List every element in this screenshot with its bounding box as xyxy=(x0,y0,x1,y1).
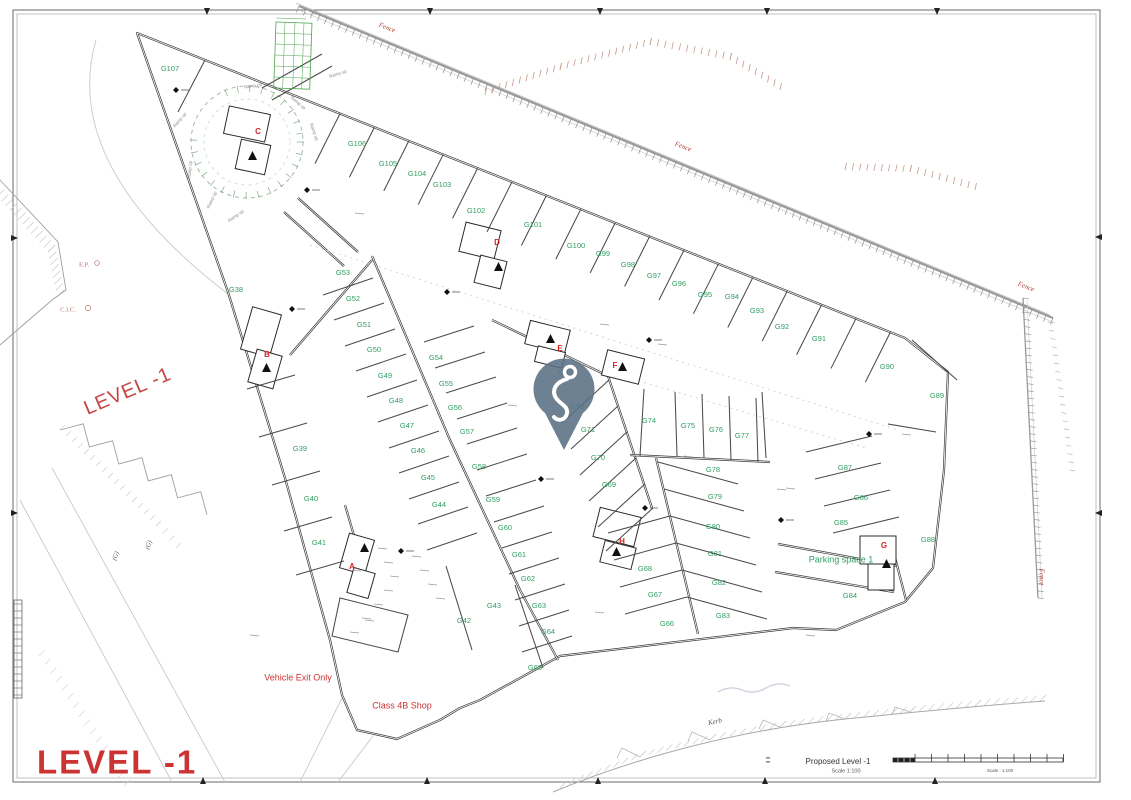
stair-core-label: H xyxy=(619,537,625,546)
parking-space-label: G58 xyxy=(472,462,486,471)
stall-divider xyxy=(675,392,677,456)
parking-space-label: G99 xyxy=(596,249,610,258)
stair-core-room xyxy=(347,567,375,598)
micro-annotation xyxy=(365,620,374,621)
survey-marker xyxy=(646,337,652,343)
scale-bar: Scale : 1:100 xyxy=(893,754,1064,773)
parking-space-label: G50 xyxy=(367,345,381,354)
micro-annotation xyxy=(508,405,517,406)
survey-marker xyxy=(642,505,648,511)
parking-space-label: G82 xyxy=(712,578,726,587)
parking-space-label: G77 xyxy=(735,431,749,440)
parking-space-label: G84 xyxy=(843,591,857,600)
parking-space-label: G39 xyxy=(293,444,307,453)
parking-space-label: G66 xyxy=(660,619,674,628)
stair-core-label: F xyxy=(613,361,618,370)
micro-annotation xyxy=(374,604,383,605)
parking-space-label: G81 xyxy=(708,549,722,558)
stall-divider xyxy=(323,278,373,295)
stall-divider xyxy=(797,305,822,355)
stall-divider xyxy=(467,428,517,444)
stall-divider xyxy=(762,291,787,341)
parking-space-label: G76 xyxy=(709,425,723,434)
parking-space-label: G67 xyxy=(648,590,662,599)
stair-core-label: B xyxy=(264,350,270,359)
fence-label: Fence xyxy=(377,20,397,34)
parking-space-label: G45 xyxy=(421,473,435,482)
parking-space-label: G87 xyxy=(838,463,852,472)
gray-annotation: Kerb xyxy=(706,716,723,727)
parking-space-label: G57 xyxy=(460,427,474,436)
fence-label: Fence xyxy=(1016,279,1036,293)
stair-core-label: A xyxy=(349,562,355,571)
stall-divider xyxy=(912,340,957,380)
parking-space-label: G94 xyxy=(725,292,739,301)
parking-space-label: G54 xyxy=(429,353,443,362)
stall-divider xyxy=(729,396,731,460)
parking-space-label: G49 xyxy=(378,371,392,380)
stall-divider xyxy=(418,507,468,524)
parking-space-label: G61 xyxy=(512,550,526,559)
parking-space-label: G56 xyxy=(448,403,462,412)
stall-divider xyxy=(659,250,684,300)
stall-divider xyxy=(272,471,320,485)
parking-space-label: Parking space 1 xyxy=(809,554,874,564)
parking-space-label: G69 xyxy=(602,480,616,489)
ramp-label: Ramp up xyxy=(244,82,263,90)
stall-divider xyxy=(728,277,753,327)
gray-annotation: (G) xyxy=(144,540,153,551)
parking-space-label: G48 xyxy=(389,396,403,405)
stair-core-label: G xyxy=(881,541,887,550)
parking-space-label: G52 xyxy=(346,294,360,303)
stall-divider xyxy=(367,380,417,397)
parking-space-label: G106 xyxy=(348,139,366,148)
ramp-label: Ramp up xyxy=(328,68,347,79)
stall-divider xyxy=(399,456,449,473)
parking-space-label: G64 xyxy=(541,627,555,636)
stall-divider xyxy=(446,566,472,650)
survey-marker xyxy=(289,306,295,312)
stall-divider xyxy=(658,462,738,484)
survey-marker xyxy=(444,289,450,295)
stall-divider xyxy=(446,377,496,393)
micro-annotation xyxy=(428,584,437,585)
micro-annotation xyxy=(362,618,371,619)
parking-space-label: G70 xyxy=(591,453,605,462)
parking-space-label: G92 xyxy=(775,322,789,331)
survey-marker xyxy=(538,476,544,482)
parking-space-label: G59 xyxy=(486,495,500,504)
stall-divider xyxy=(590,223,615,273)
stall-divider xyxy=(349,127,374,177)
parking-space-label: G91 xyxy=(812,334,826,343)
parking-space-label: G85 xyxy=(834,518,848,527)
fence-label: Fence xyxy=(673,139,693,153)
red-annotation: Vehicle Exit Only xyxy=(264,672,332,682)
parking-space-label: G93 xyxy=(750,306,764,315)
parking-space-label: G60 xyxy=(498,523,512,532)
parking-space-label: G62 xyxy=(521,574,535,583)
parking-space-label: G51 xyxy=(357,320,371,329)
parking-space-label: G40 xyxy=(304,494,318,503)
sheet-scale: Scale 1:100 xyxy=(831,768,860,774)
parking-space-label: G75 xyxy=(681,421,695,430)
micro-annotation xyxy=(384,562,393,563)
stall-divider xyxy=(664,489,744,511)
parking-space-label: G88 xyxy=(921,535,935,544)
parking-space-label: G101 xyxy=(524,220,542,229)
parking-space-label: G102 xyxy=(467,206,485,215)
micro-annotation xyxy=(600,324,609,325)
micro-annotation xyxy=(420,570,429,571)
parking-space-label: G90 xyxy=(880,362,894,371)
stall-divider xyxy=(334,303,384,320)
micro-annotation xyxy=(384,590,393,591)
micro-annotation xyxy=(350,632,359,633)
stall-divider xyxy=(345,329,395,346)
micro-annotation xyxy=(355,213,364,214)
stall-divider xyxy=(494,506,544,522)
stall-divider xyxy=(693,264,718,314)
parking-space-label: G107 xyxy=(161,64,179,73)
parking-space-label: G43 xyxy=(487,601,501,610)
micro-annotation xyxy=(412,556,421,557)
parking-space-label: G95 xyxy=(698,290,712,299)
parking-space-label: G80 xyxy=(706,522,720,531)
micro-annotation xyxy=(777,489,786,490)
stall-divider xyxy=(284,517,332,531)
stall-divider xyxy=(625,597,687,614)
stair-core-room xyxy=(224,106,271,142)
parking-space-label: G44 xyxy=(432,500,446,509)
stall-divider xyxy=(702,394,704,458)
survey-marker xyxy=(778,517,784,523)
stall-divider xyxy=(378,405,428,422)
stair-core-label: E xyxy=(557,344,563,353)
ramp-label: Ramp up xyxy=(172,111,188,129)
stall-divider xyxy=(486,480,536,496)
stall-divider xyxy=(487,182,512,232)
stall-divider xyxy=(457,403,507,419)
parking-space-label: G42 xyxy=(457,616,471,625)
micro-annotation xyxy=(436,598,445,599)
site-label: C.I.C. xyxy=(60,306,76,313)
parking-space-label: G103 xyxy=(433,180,451,189)
survey-marker xyxy=(398,548,404,554)
parking-space-label: G105 xyxy=(379,159,397,168)
micro-annotation xyxy=(390,576,399,577)
kerb-curve xyxy=(553,701,1045,792)
stall-divider xyxy=(409,482,459,499)
parking-space-label: G65 xyxy=(528,663,542,672)
stall-divider xyxy=(502,532,552,548)
parking-space-label: G38 xyxy=(229,285,243,294)
stall-divider xyxy=(888,424,936,432)
stall-divider xyxy=(806,436,872,452)
parking-space-label: G96 xyxy=(672,279,686,288)
stall-divider xyxy=(296,561,344,575)
parking-space-label: G55 xyxy=(439,379,453,388)
parking-space-label: G47 xyxy=(400,421,414,430)
fence-label: Fence xyxy=(1037,567,1045,585)
parking-space-label: G89 xyxy=(930,391,944,400)
title-block: Proposed Level -1 Scale 1:100 Scale : 1:… xyxy=(766,754,1064,774)
stall-divider xyxy=(424,326,474,342)
stall-divider xyxy=(509,558,559,574)
parking-space-label: G63 xyxy=(532,601,546,610)
parking-space-label: G46 xyxy=(411,446,425,455)
stair-core-label: C xyxy=(255,127,261,136)
micro-annotation xyxy=(595,612,604,613)
red-annotation: Class 4B Shop xyxy=(372,700,432,710)
stall-divider xyxy=(756,398,758,462)
micro-annotation xyxy=(378,548,387,549)
parking-space-label: G104 xyxy=(408,169,426,178)
ladder-strip xyxy=(14,600,22,698)
parking-space-label: G71 xyxy=(581,425,595,434)
stair-core-room xyxy=(474,255,507,289)
parking-space-label: G98 xyxy=(621,260,635,269)
ramp-label: Ramp up xyxy=(186,160,193,179)
micro-annotation xyxy=(786,488,795,489)
level-title-corner: LEVEL -1 xyxy=(37,744,197,781)
micro-annotation xyxy=(806,635,815,636)
stair-core-label: D xyxy=(494,238,500,247)
ramp-label: Ramp up xyxy=(206,190,218,209)
parking-space-label: G79 xyxy=(708,492,722,501)
parking-space-label: G53 xyxy=(336,268,350,277)
ramp-label: Ramp up xyxy=(309,122,320,141)
micro-annotation xyxy=(902,434,911,435)
stall-divider xyxy=(515,584,565,600)
stall-divider xyxy=(831,318,856,368)
parking-space-label: G83 xyxy=(716,611,730,620)
parking-space-label: G78 xyxy=(706,465,720,474)
scale-bar-caption: Scale : 1:100 xyxy=(987,768,1014,773)
floor-plan-canvas[interactable]: G38G39G40G41G42G43G44G45G46G47G48G49G50G… xyxy=(0,0,1131,800)
stall-divider xyxy=(259,423,307,437)
stall-divider xyxy=(356,354,406,371)
parking-space-label: G74 xyxy=(642,416,656,425)
site-label: E.P. xyxy=(79,261,89,268)
stall-divider xyxy=(762,392,766,458)
parking-space-label: G100 xyxy=(567,241,585,250)
stall-divider xyxy=(556,209,581,259)
parking-space-label: G68 xyxy=(638,564,652,573)
level-title-rotated: LEVEL -1 xyxy=(81,363,175,420)
micro-annotation xyxy=(250,635,259,636)
sheet-title: Proposed Level -1 xyxy=(806,757,871,766)
stall-divider xyxy=(865,332,890,382)
parking-space-label: G97 xyxy=(647,271,661,280)
micro-annotation xyxy=(658,344,667,345)
ramp-label: Ramp up xyxy=(227,208,245,223)
stall-divider xyxy=(178,60,205,112)
survey-marker xyxy=(304,187,310,193)
stall-divider xyxy=(427,533,477,550)
parking-space-label: G41 xyxy=(312,538,326,547)
survey-marker xyxy=(173,87,179,93)
gray-annotation: (G) xyxy=(111,551,120,562)
parking-space-label: G86 xyxy=(854,493,868,502)
